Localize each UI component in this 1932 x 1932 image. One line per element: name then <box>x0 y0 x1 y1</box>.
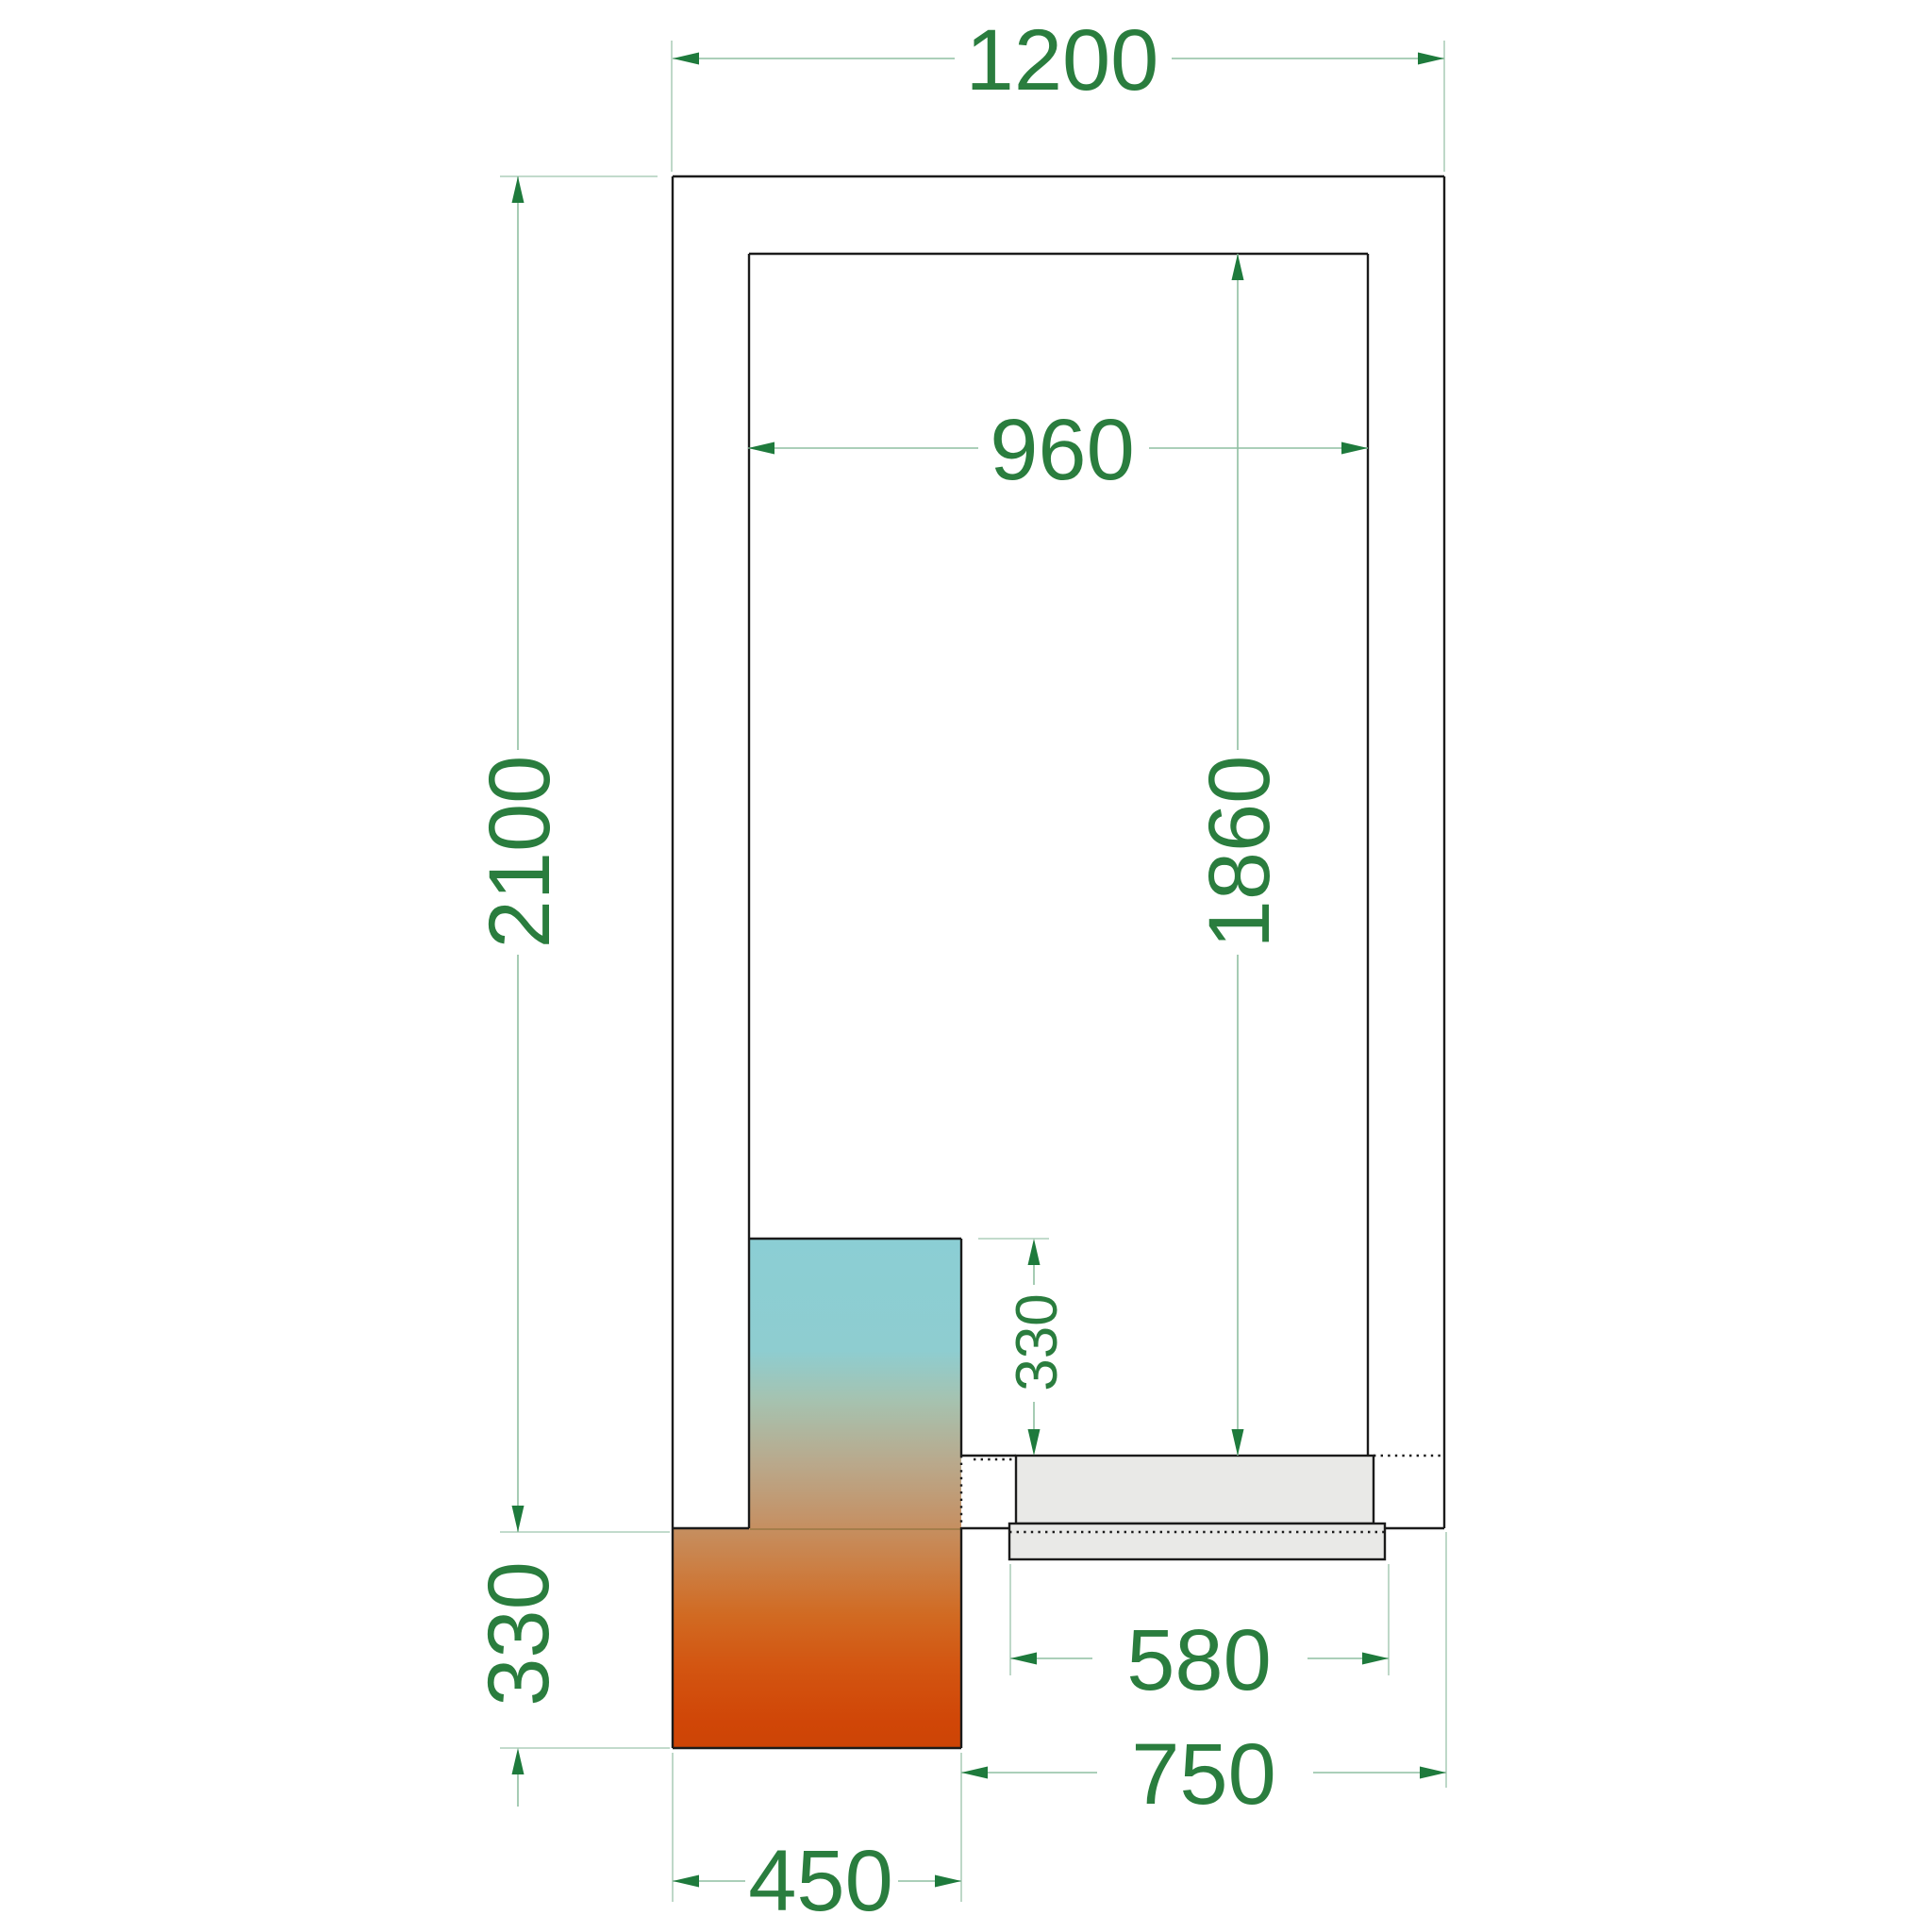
dim-label-unit-outside-depth: 330 <box>471 1561 567 1707</box>
arrow-up-icon <box>512 1748 525 1774</box>
door-assembly <box>974 1456 1385 1559</box>
dim-label-inner-width: 960 <box>990 402 1135 498</box>
dim-label-door-span: 750 <box>1131 1726 1276 1823</box>
door-threshold <box>1009 1524 1385 1559</box>
arrow-right-icon <box>1362 1653 1389 1665</box>
arrow-up-icon <box>512 176 525 203</box>
dim-outer-width: 1200 <box>672 12 1444 172</box>
arrow-left-icon <box>673 53 699 65</box>
arrow-left-icon <box>673 1875 699 1888</box>
arrow-left-icon <box>1010 1653 1037 1665</box>
dim-door-width: 580 <box>1010 1564 1389 1708</box>
door-leaf <box>1016 1456 1374 1524</box>
cold-room-plan-drawing: 1200 960 2100 1860 330 <box>0 0 1932 1932</box>
arrow-right-icon <box>1418 53 1444 65</box>
dim-unit-inside-depth: 330 <box>978 1239 1070 1456</box>
arrow-right-icon <box>1341 442 1368 455</box>
arrow-down-icon <box>1232 1429 1244 1456</box>
dim-label-outer-depth: 2100 <box>472 756 568 949</box>
cooling-unit-block <box>673 1239 961 1748</box>
dim-label-inner-depth: 1860 <box>1191 756 1288 949</box>
dim-label-unit-inside-depth: 330 <box>1005 1293 1070 1391</box>
arrow-right-icon <box>935 1875 961 1888</box>
dim-label-outer-width: 1200 <box>966 12 1159 108</box>
dim-unit-outside-depth: 330 <box>471 1561 670 1807</box>
arrow-left-icon <box>961 1767 988 1779</box>
arrow-right-icon <box>1420 1767 1446 1779</box>
dim-unit-width: 450 <box>673 1753 961 1929</box>
arrow-down-icon <box>1028 1429 1041 1456</box>
arrow-up-icon <box>1028 1239 1041 1265</box>
dim-label-door-width: 580 <box>1126 1612 1272 1708</box>
arrow-up-icon <box>1232 254 1244 280</box>
dim-label-unit-width: 450 <box>748 1833 893 1929</box>
dim-outer-depth: 2100 <box>472 176 670 1532</box>
dim-inner-depth: 1860 <box>1191 254 1288 1456</box>
arrow-left-icon <box>748 442 774 455</box>
technical-drawing-canvas: 1200 960 2100 1860 330 <box>0 0 1932 1932</box>
dim-inner-width: 960 <box>748 402 1368 498</box>
cooling-unit-gradient-body <box>673 1239 961 1748</box>
arrow-down-icon <box>512 1506 525 1532</box>
